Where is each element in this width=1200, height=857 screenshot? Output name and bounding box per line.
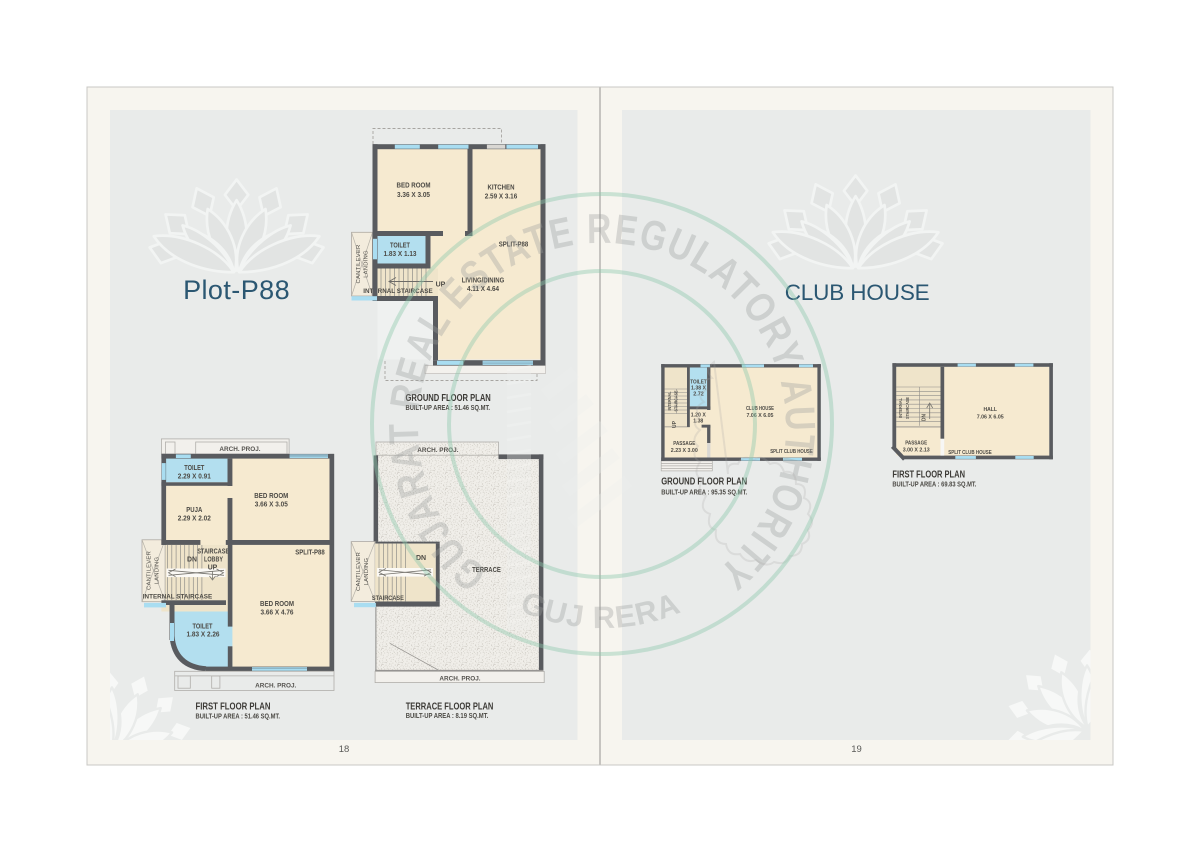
svg-text:19: 19 [851,744,862,755]
svg-text:STAIRCASE: STAIRCASE [197,548,229,555]
svg-text:INTERNAL: INTERNAL [898,398,904,418]
svg-text:BUILT-UP AREA : 8.19 SQ.MT.: BUILT-UP AREA : 8.19 SQ.MT. [406,711,489,720]
svg-text:LANDING: LANDING [155,556,161,584]
svg-text:BED ROOM: BED ROOM [397,181,431,190]
svg-text:HALL: HALL [983,407,997,413]
svg-text:BUILT-UP AREA : 51.46 SQ.MT.: BUILT-UP AREA : 51.46 SQ.MT. [196,712,281,721]
svg-text:1.83 X 1.13: 1.83 X 1.13 [384,249,417,258]
svg-text:STAIRCASE: STAIRCASE [372,595,404,602]
svg-text:3.66 X 3.05: 3.66 X 3.05 [255,500,288,509]
svg-text:KITCHEN: KITCHEN [488,183,515,192]
svg-text:BED ROOM: BED ROOM [254,491,288,500]
svg-text:3.00 X 2.13: 3.00 X 2.13 [903,447,931,453]
svg-text:CLUB HOUSE: CLUB HOUSE [785,280,931,305]
svg-text:DN: DN [922,414,928,422]
svg-text:LANDING: LANDING [364,250,370,278]
svg-text:INTERNAL STAIRCASE: INTERNAL STAIRCASE [143,593,212,600]
svg-text:LANDING: LANDING [364,557,370,585]
svg-text:1.83 X 2.26: 1.83 X 2.26 [187,630,220,639]
svg-text:2.29 X 0.91: 2.29 X 0.91 [178,472,211,481]
svg-text:SPLIT-P88: SPLIT-P88 [295,547,325,556]
svg-text:STAIRCASE: STAIRCASE [905,396,911,419]
svg-text:CANTILEVER: CANTILEVER [147,551,153,590]
svg-text:7.06 X 6.05: 7.06 X 6.05 [977,414,1005,420]
svg-text:ARCH. PROJ.: ARCH. PROJ. [219,446,260,453]
svg-text:2.29 X 2.02: 2.29 X 2.02 [178,513,211,522]
svg-text:ARCH. PROJ.: ARCH. PROJ. [255,683,296,690]
svg-text:3.36 X 3.05: 3.36 X 3.05 [397,190,430,199]
svg-text:CLUB HOUSE: CLUB HOUSE [746,406,774,412]
svg-text:ARCH. PROJ.: ARCH. PROJ. [439,675,480,682]
svg-text:INTERNAL: INTERNAL [667,391,672,410]
svg-text:SPLIT CLUB HOUSE: SPLIT CLUB HOUSE [948,450,992,456]
svg-text:LOBBY: LOBBY [204,556,223,563]
svg-text:PASSAGE: PASSAGE [905,441,927,447]
svg-text:UP: UP [208,564,218,571]
svg-text:2.59 X 3.16: 2.59 X 3.16 [485,192,518,201]
svg-text:BUILT-UP AREA : 69.83 SQ.MT.: BUILT-UP AREA : 69.83 SQ.MT. [892,479,976,488]
svg-text:GROUND FLOOR PLAN: GROUND FLOOR PLAN [661,477,747,488]
svg-text:18: 18 [339,744,350,755]
svg-text:CANTILEVER: CANTILEVER [356,245,362,284]
svg-text:PASSAGE: PASSAGE [673,441,695,447]
svg-text:UP: UP [672,420,678,428]
svg-text:DN: DN [187,556,197,563]
svg-text:3.66 X 4.76: 3.66 X 4.76 [261,607,294,616]
svg-text:CANTILEVER: CANTILEVER [356,552,362,591]
svg-text:7.06 X 6.05: 7.06 X 6.05 [747,413,775,419]
svg-text:Plot-P88: Plot-P88 [183,275,290,305]
svg-text:STAIRCASE: STAIRCASE [674,391,679,412]
